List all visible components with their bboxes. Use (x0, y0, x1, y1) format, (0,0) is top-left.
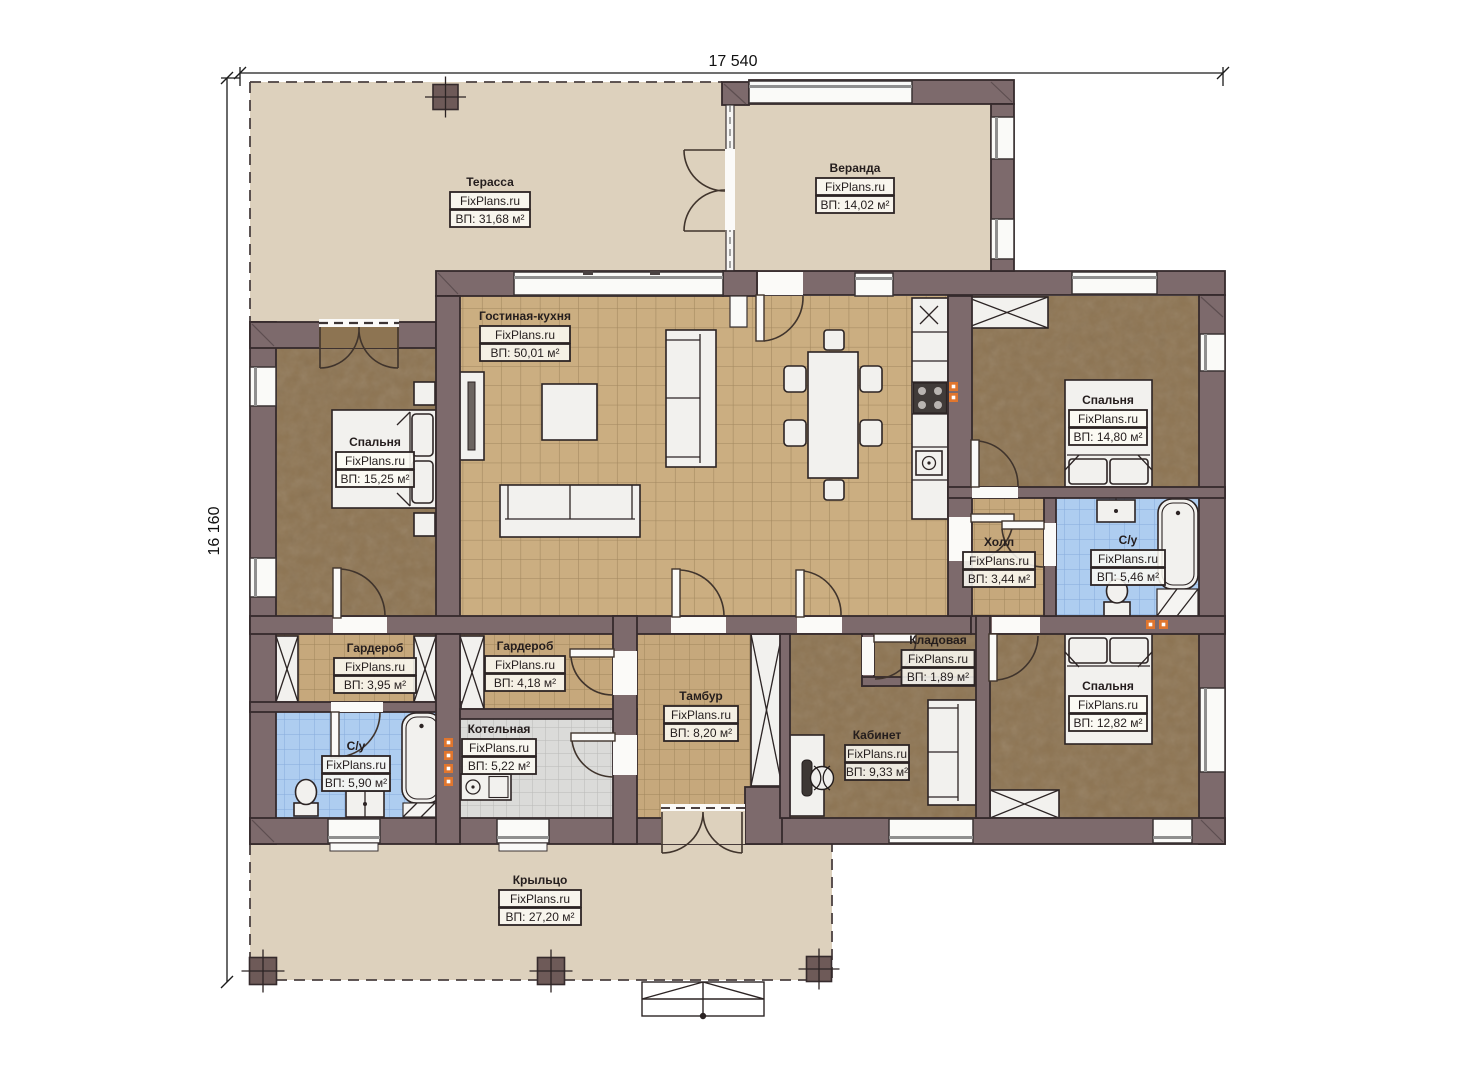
svg-text:FixPlans.ru: FixPlans.ru (345, 454, 405, 468)
svg-text:ВП: 15,25 м²: ВП: 15,25 м² (341, 472, 410, 486)
svg-text:ВП: 4,18 м²: ВП: 4,18 м² (494, 676, 556, 690)
svg-text:ВП: 14,80 м²: ВП: 14,80 м² (1074, 430, 1143, 444)
svg-text:ВП: 50,01 м²: ВП: 50,01 м² (491, 346, 560, 360)
svg-text:ВП: 14,02 м²: ВП: 14,02 м² (821, 198, 890, 212)
svg-text:С/у: С/у (347, 739, 366, 753)
svg-text:ВП: 27,20 м²: ВП: 27,20 м² (506, 910, 575, 924)
svg-text:ВП: 8,20 м²: ВП: 8,20 м² (670, 726, 732, 740)
svg-text:ВП: 31,68 м²: ВП: 31,68 м² (456, 212, 525, 226)
svg-text:FixPlans.ru: FixPlans.ru (495, 658, 555, 672)
svg-text:Гостиная-кухня: Гостиная-кухня (479, 309, 571, 323)
svg-text:ВП: 5,46 м²: ВП: 5,46 м² (1097, 570, 1159, 584)
svg-text:ВП: 5,22 м²: ВП: 5,22 м² (468, 759, 530, 773)
svg-text:FixPlans.ru: FixPlans.ru (460, 194, 520, 208)
svg-text:ВП: 5,90 м²: ВП: 5,90 м² (325, 776, 387, 790)
svg-text:FixPlans.ru: FixPlans.ru (671, 708, 731, 722)
svg-text:Гардероб: Гардероб (347, 641, 404, 655)
svg-text:FixPlans.ru: FixPlans.ru (469, 741, 529, 755)
svg-text:17 540: 17 540 (709, 53, 758, 70)
svg-text:FixPlans.ru: FixPlans.ru (847, 747, 907, 761)
svg-text:Кладовая: Кладовая (909, 633, 966, 647)
svg-text:Веранда: Веранда (830, 161, 881, 175)
svg-text:С/у: С/у (1119, 533, 1138, 547)
svg-text:FixPlans.ru: FixPlans.ru (495, 328, 555, 342)
svg-text:ВП: 12,82 м²: ВП: 12,82 м² (1074, 716, 1143, 730)
svg-text:ВП: 9,33 м²: ВП: 9,33 м² (846, 765, 908, 779)
svg-text:Холл: Холл (984, 535, 1014, 549)
svg-text:Кабинет: Кабинет (853, 728, 902, 742)
svg-text:Крыльцо: Крыльцо (513, 873, 568, 887)
svg-text:Спальня: Спальня (1082, 679, 1134, 693)
svg-text:FixPlans.ru: FixPlans.ru (825, 180, 885, 194)
svg-text:Терасса: Терасса (466, 175, 514, 189)
svg-text:FixPlans.ru: FixPlans.ru (908, 652, 968, 666)
svg-text:ВП: 1,89 м²: ВП: 1,89 м² (907, 670, 969, 684)
svg-text:FixPlans.ru: FixPlans.ru (1078, 412, 1138, 426)
svg-text:Гардероб: Гардероб (497, 639, 554, 653)
svg-text:Спальня: Спальня (1082, 393, 1134, 407)
svg-text:ВП: 3,44 м²: ВП: 3,44 м² (968, 572, 1030, 586)
svg-text:Тамбур: Тамбур (679, 689, 723, 703)
svg-text:FixPlans.ru: FixPlans.ru (510, 892, 570, 906)
svg-text:Котельная: Котельная (468, 722, 531, 736)
svg-text:FixPlans.ru: FixPlans.ru (1078, 698, 1138, 712)
svg-text:16 160: 16 160 (206, 506, 223, 555)
svg-text:FixPlans.ru: FixPlans.ru (345, 660, 405, 674)
svg-text:ВП: 3,95 м²: ВП: 3,95 м² (344, 678, 406, 692)
svg-text:FixPlans.ru: FixPlans.ru (969, 554, 1029, 568)
svg-text:FixPlans.ru: FixPlans.ru (1098, 552, 1158, 566)
svg-text:Спальня: Спальня (349, 435, 401, 449)
svg-text:FixPlans.ru: FixPlans.ru (326, 758, 386, 772)
